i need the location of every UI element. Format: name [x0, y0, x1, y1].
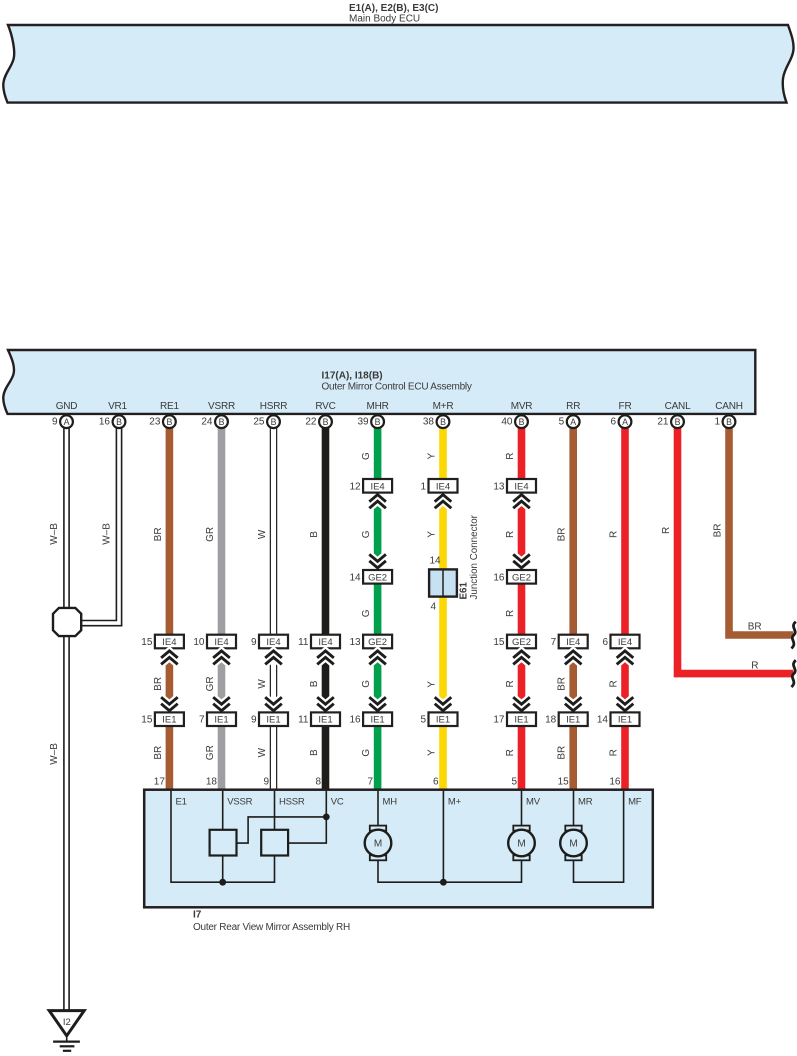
svg-text:39: 39: [357, 417, 369, 428]
svg-text:W: W: [257, 529, 268, 539]
svg-text:Junction Connector: Junction Connector: [469, 514, 480, 599]
svg-text:IE1: IE1: [162, 715, 176, 726]
svg-text:B: B: [271, 417, 277, 427]
svg-text:9: 9: [251, 637, 257, 648]
svg-text:17: 17: [493, 715, 505, 726]
svg-text:RE1: RE1: [160, 401, 179, 412]
svg-text:Y: Y: [426, 531, 437, 538]
svg-text:IE1: IE1: [436, 715, 450, 726]
svg-text:15: 15: [141, 637, 153, 648]
svg-text:VSSR: VSSR: [227, 796, 252, 807]
svg-text:R: R: [505, 531, 516, 538]
svg-text:17: 17: [154, 777, 166, 788]
svg-text:VC: VC: [331, 796, 344, 807]
svg-text:A: A: [64, 417, 70, 427]
svg-text:E1(A), E2(B), E3(C): E1(A), E2(B), E3(C): [349, 3, 438, 14]
svg-text:HSRR: HSRR: [260, 401, 288, 412]
svg-text:Outer Mirror Control ECU Assem: Outer Mirror Control ECU Assembly: [322, 381, 472, 392]
svg-text:IE4: IE4: [436, 481, 450, 492]
svg-text:GR: GR: [205, 676, 216, 691]
svg-text:R: R: [751, 661, 758, 672]
svg-text:IE1: IE1: [318, 715, 332, 726]
svg-text:B: B: [675, 417, 681, 427]
svg-text:7: 7: [551, 637, 557, 648]
svg-text:R: R: [608, 749, 619, 756]
svg-text:B: B: [309, 531, 320, 538]
svg-text:8: 8: [315, 777, 321, 788]
svg-text:CANL: CANL: [665, 401, 692, 412]
svg-text:G: G: [361, 749, 372, 757]
svg-text:IE1: IE1: [370, 715, 384, 726]
svg-text:MF: MF: [628, 796, 642, 807]
svg-text:1: 1: [420, 481, 426, 492]
svg-text:16: 16: [609, 777, 621, 788]
svg-text:RR: RR: [566, 401, 580, 412]
svg-text:10: 10: [193, 637, 205, 648]
svg-text:BR: BR: [153, 677, 164, 691]
svg-text:W–B: W–B: [49, 743, 60, 765]
svg-text:7: 7: [199, 715, 205, 726]
svg-text:M: M: [517, 839, 525, 850]
svg-text:25: 25: [253, 417, 265, 428]
svg-text:5: 5: [511, 777, 517, 788]
svg-text:13: 13: [493, 481, 505, 492]
svg-text:M: M: [569, 839, 577, 850]
svg-text:VSRR: VSRR: [208, 401, 235, 412]
svg-text:R: R: [608, 680, 619, 687]
svg-text:R: R: [505, 610, 516, 617]
svg-text:24: 24: [201, 417, 213, 428]
svg-text:A: A: [570, 417, 576, 427]
svg-text:R: R: [505, 452, 516, 459]
svg-text:B: B: [219, 417, 225, 427]
svg-text:VR1: VR1: [108, 401, 127, 412]
svg-text:16: 16: [349, 715, 361, 726]
svg-text:BR: BR: [153, 527, 164, 541]
svg-text:6: 6: [610, 417, 616, 428]
svg-text:18: 18: [545, 715, 557, 726]
svg-text:B: B: [726, 417, 732, 427]
svg-text:E61: E61: [459, 582, 470, 600]
svg-text:G: G: [361, 452, 372, 460]
svg-text:18: 18: [206, 777, 218, 788]
svg-text:G: G: [361, 530, 372, 538]
svg-text:6: 6: [433, 777, 439, 788]
svg-text:13: 13: [349, 637, 361, 648]
svg-text:IE1: IE1: [566, 715, 580, 726]
svg-text:MVR: MVR: [511, 401, 533, 412]
svg-text:9: 9: [251, 715, 257, 726]
svg-text:B: B: [116, 417, 122, 427]
svg-text:14: 14: [597, 715, 609, 726]
svg-text:15: 15: [141, 715, 153, 726]
svg-text:Main Body ECU: Main Body ECU: [349, 14, 420, 25]
svg-text:CANH: CANH: [715, 401, 743, 412]
svg-text:16: 16: [99, 417, 111, 428]
svg-text:7: 7: [368, 777, 374, 788]
svg-text:I2: I2: [63, 1017, 71, 1028]
svg-text:E1: E1: [176, 796, 187, 807]
svg-text:Y: Y: [426, 749, 437, 756]
svg-text:G: G: [361, 680, 372, 688]
svg-text:MR: MR: [578, 796, 593, 807]
svg-text:5: 5: [559, 417, 565, 428]
svg-text:B: B: [440, 417, 446, 427]
svg-text:38: 38: [423, 417, 435, 428]
svg-text:BR: BR: [153, 746, 164, 760]
svg-text:W–B: W–B: [49, 523, 60, 545]
svg-text:40: 40: [501, 417, 513, 428]
svg-text:M+R: M+R: [433, 401, 454, 412]
svg-text:FR: FR: [619, 401, 632, 412]
svg-text:11: 11: [298, 637, 309, 648]
svg-text:B: B: [166, 417, 172, 427]
svg-text:B: B: [323, 417, 329, 427]
svg-text:GND: GND: [56, 401, 78, 412]
svg-text:11: 11: [298, 715, 309, 726]
svg-text:BR: BR: [557, 527, 568, 541]
svg-text:B: B: [375, 417, 381, 427]
svg-text:GE2: GE2: [368, 572, 387, 583]
svg-text:Y: Y: [426, 681, 437, 688]
svg-text:IE4: IE4: [514, 481, 528, 492]
svg-text:A: A: [622, 417, 628, 427]
svg-text:W: W: [257, 747, 268, 757]
svg-text:W: W: [257, 679, 268, 689]
svg-text:4: 4: [431, 601, 437, 612]
svg-text:23: 23: [149, 417, 161, 428]
svg-text:9: 9: [263, 777, 269, 788]
svg-text:MH: MH: [383, 796, 398, 807]
svg-text:IE1: IE1: [618, 715, 632, 726]
svg-text:RVC: RVC: [315, 401, 335, 412]
svg-text:5: 5: [420, 715, 426, 726]
svg-text:IE1: IE1: [214, 715, 228, 726]
svg-text:BR: BR: [712, 523, 723, 537]
svg-text:14: 14: [430, 555, 442, 566]
svg-text:I7: I7: [193, 909, 202, 920]
svg-text:15: 15: [558, 777, 570, 788]
svg-text:R: R: [608, 531, 619, 538]
svg-text:M+: M+: [448, 796, 462, 807]
svg-text:9: 9: [52, 417, 58, 428]
svg-text:HSSR: HSSR: [279, 796, 305, 807]
svg-text:16: 16: [493, 572, 505, 583]
svg-text:MHR: MHR: [367, 401, 389, 412]
svg-text:BR: BR: [557, 746, 568, 760]
svg-text:GE2: GE2: [512, 572, 531, 583]
svg-text:IE1: IE1: [514, 715, 528, 726]
svg-text:M: M: [374, 839, 382, 850]
svg-text:R: R: [505, 680, 516, 687]
svg-text:22: 22: [305, 417, 317, 428]
svg-text:B: B: [309, 680, 320, 687]
svg-text:IE1: IE1: [266, 715, 280, 726]
svg-text:G: G: [361, 609, 372, 617]
svg-text:R: R: [661, 527, 672, 534]
svg-text:BR: BR: [748, 622, 762, 633]
svg-text:GR: GR: [205, 527, 216, 542]
svg-text:Y: Y: [426, 452, 437, 459]
svg-text:R: R: [505, 749, 516, 756]
svg-text:IE4: IE4: [370, 481, 384, 492]
svg-text:Outer Rear View Mirror Assembl: Outer Rear View Mirror Assembly RH: [193, 922, 350, 933]
svg-text:12: 12: [349, 481, 361, 492]
svg-text:B: B: [519, 417, 525, 427]
svg-text:GR: GR: [205, 745, 216, 760]
svg-text:MV: MV: [526, 796, 541, 807]
svg-text:W–B: W–B: [102, 523, 113, 545]
svg-text:BR: BR: [557, 677, 568, 691]
svg-text:I17(A), I18(B): I17(A), I18(B): [322, 370, 383, 381]
svg-text:1: 1: [714, 417, 720, 428]
svg-text:21: 21: [657, 417, 669, 428]
svg-text:B: B: [309, 749, 320, 756]
svg-text:14: 14: [349, 572, 361, 583]
svg-text:6: 6: [602, 637, 608, 648]
svg-text:15: 15: [493, 637, 505, 648]
